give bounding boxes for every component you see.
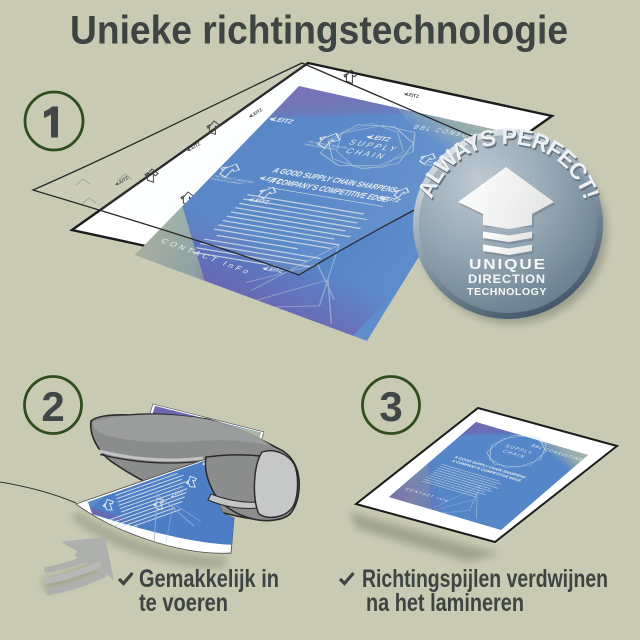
- svg-text:Unieke richtingstechnologie: Unieke richtingstechnologie: [70, 9, 568, 53]
- svg-text:te voeren: te voeren: [139, 589, 228, 617]
- svg-text:2: 2: [41, 383, 64, 430]
- svg-text:na het lamineren: na het lamineren: [366, 589, 524, 617]
- svg-text:TECHNOLOGY: TECHNOLOGY: [467, 287, 547, 298]
- svg-text:DIRECTION: DIRECTION: [468, 274, 546, 286]
- svg-text:3: 3: [379, 383, 402, 430]
- svg-text:UNIQUE: UNIQUE: [469, 257, 547, 273]
